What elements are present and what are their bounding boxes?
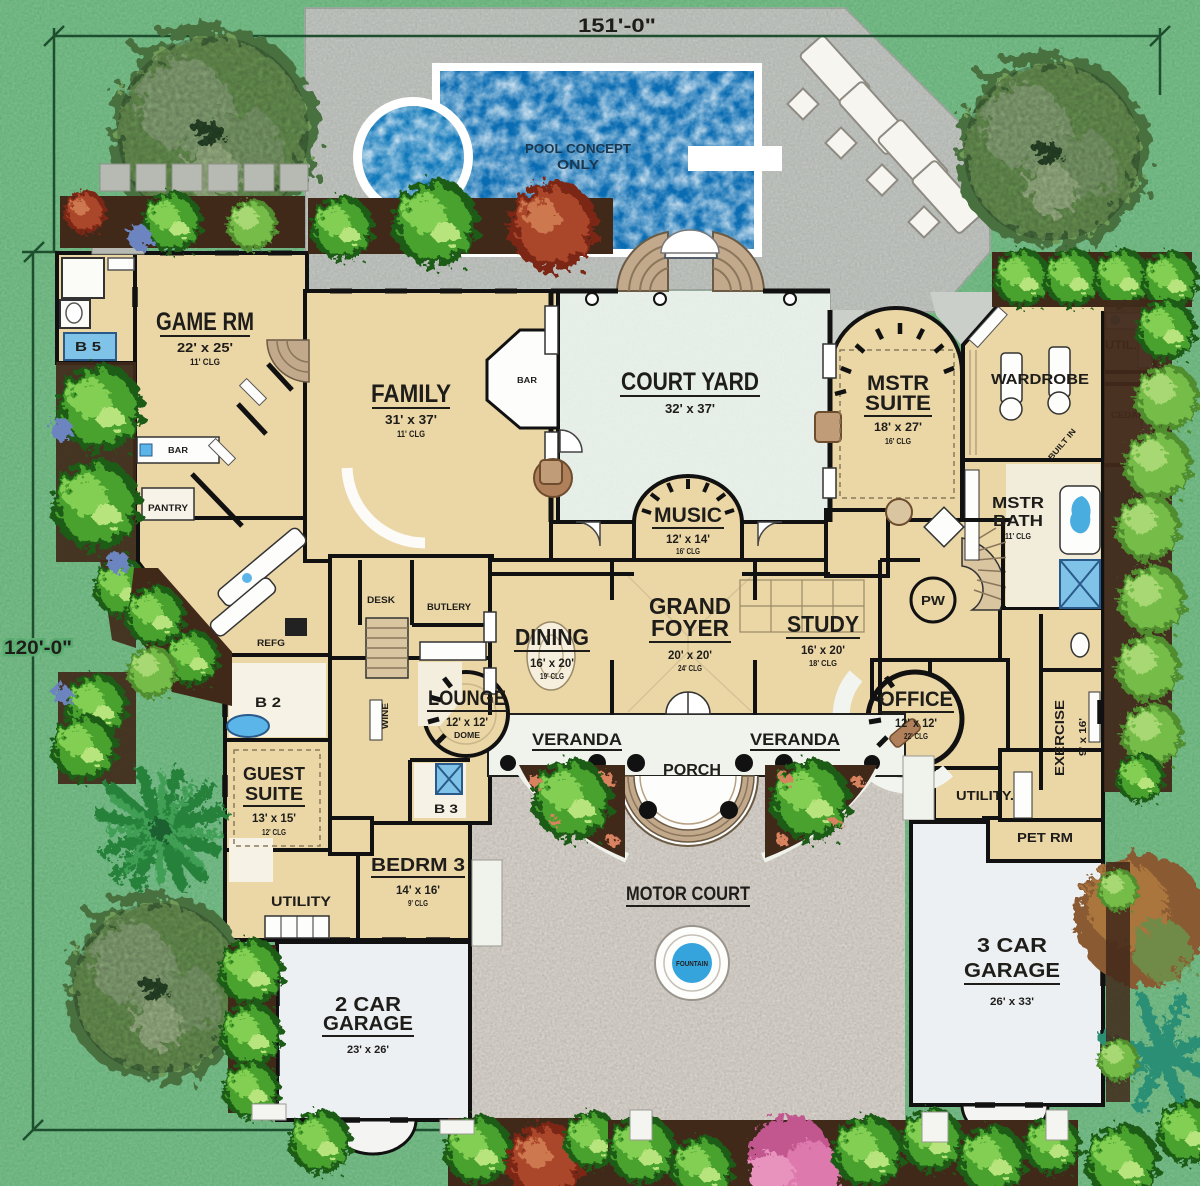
svg-text:BAR: BAR <box>168 446 188 455</box>
svg-text:UTILITY: UTILITY <box>271 893 332 909</box>
svg-text:STUDY: STUDY <box>787 611 859 637</box>
svg-text:151'-0": 151'-0" <box>578 16 656 37</box>
svg-text:SUITE: SUITE <box>865 392 931 415</box>
svg-text:12' CLG: 12' CLG <box>262 828 286 837</box>
svg-text:LOUNGE: LOUNGE <box>428 687 506 710</box>
svg-text:UTILITY.: UTILITY. <box>956 788 1014 803</box>
svg-text:DINING: DINING <box>515 624 589 650</box>
svg-text:31' x 37': 31' x 37' <box>385 412 437 427</box>
svg-text:16' x 20': 16' x 20' <box>801 643 845 657</box>
svg-text:19' CLG: 19' CLG <box>540 672 564 681</box>
svg-text:MSTR: MSTR <box>992 495 1045 512</box>
svg-text:9' CLG: 9' CLG <box>408 899 428 908</box>
svg-text:24' CLG: 24' CLG <box>678 664 702 673</box>
svg-text:BAR: BAR <box>517 376 537 385</box>
svg-text:120'-0": 120'-0" <box>4 638 72 659</box>
svg-text:VERANDA: VERANDA <box>750 730 840 749</box>
svg-text:PANTRY: PANTRY <box>148 503 188 513</box>
svg-text:EXERCISE: EXERCISE <box>1052 700 1067 776</box>
svg-text:PORCH: PORCH <box>663 762 721 779</box>
svg-text:FOUNTAIN: FOUNTAIN <box>676 961 708 968</box>
svg-text:26' x 33': 26' x 33' <box>990 996 1034 1008</box>
svg-text:12' x 12': 12' x 12' <box>895 716 937 730</box>
svg-text:18' CLG: 18' CLG <box>809 659 837 668</box>
svg-text:14' x 16': 14' x 16' <box>396 883 440 897</box>
svg-text:WINE: WINE <box>381 702 390 729</box>
svg-text:13' x 15': 13' x 15' <box>252 811 296 825</box>
svg-text:MOTOR COURT: MOTOR COURT <box>626 884 750 905</box>
svg-text:B 5: B 5 <box>75 339 101 354</box>
svg-text:BEDRM 3: BEDRM 3 <box>371 855 465 875</box>
svg-text:3 CAR: 3 CAR <box>977 935 1048 957</box>
svg-text:18' x 27': 18' x 27' <box>874 420 922 434</box>
svg-text:B 3: B 3 <box>434 802 458 816</box>
svg-text:20' x 20': 20' x 20' <box>668 648 712 662</box>
svg-text:REFG: REFG <box>257 638 285 648</box>
svg-text:12' x 14': 12' x 14' <box>666 532 710 546</box>
svg-text:11' CLG: 11' CLG <box>1005 532 1031 541</box>
svg-text:VERANDA: VERANDA <box>532 730 622 749</box>
svg-text:BATH: BATH <box>993 513 1043 530</box>
svg-text:16' CLG: 16' CLG <box>676 547 700 556</box>
svg-text:32' x 37': 32' x 37' <box>665 401 715 416</box>
svg-text:16' x 20': 16' x 20' <box>530 656 574 670</box>
svg-text:SUITE: SUITE <box>245 784 303 804</box>
svg-text:B 2: B 2 <box>255 694 281 710</box>
svg-text:22' x 25': 22' x 25' <box>177 340 233 355</box>
svg-text:DESK: DESK <box>367 595 396 605</box>
svg-text:DOME: DOME <box>454 731 481 740</box>
svg-text:12' x 12': 12' x 12' <box>446 715 488 729</box>
svg-text:9' x 16': 9' x 16' <box>1078 718 1089 756</box>
svg-text:23' x 26': 23' x 26' <box>347 1044 389 1056</box>
svg-text:11' CLG: 11' CLG <box>397 429 425 439</box>
svg-text:22' CLG: 22' CLG <box>904 732 928 741</box>
svg-text:16' CLG: 16' CLG <box>885 437 911 446</box>
svg-text:PW: PW <box>921 593 946 608</box>
svg-text:BUTLERY: BUTLERY <box>427 602 471 612</box>
svg-text:POOL CONCEPT: POOL CONCEPT <box>525 141 631 156</box>
svg-text:11' CLG: 11' CLG <box>190 357 220 367</box>
svg-text:GARAGE: GARAGE <box>323 1013 413 1035</box>
svg-text:COURT YARD: COURT YARD <box>621 368 759 396</box>
svg-text:PET RM: PET RM <box>1017 830 1073 845</box>
svg-text:OFFICE: OFFICE <box>879 688 953 711</box>
svg-text:GAME RM: GAME RM <box>156 308 254 336</box>
svg-text:ONLY: ONLY <box>557 157 599 172</box>
svg-text:WARDROBE: WARDROBE <box>991 371 1089 388</box>
svg-text:FAMILY: FAMILY <box>371 380 451 408</box>
svg-text:MUSIC: MUSIC <box>654 504 722 527</box>
svg-text:GARAGE: GARAGE <box>964 960 1060 982</box>
svg-text:FOYER: FOYER <box>651 615 729 641</box>
svg-text:GUEST: GUEST <box>243 764 305 784</box>
